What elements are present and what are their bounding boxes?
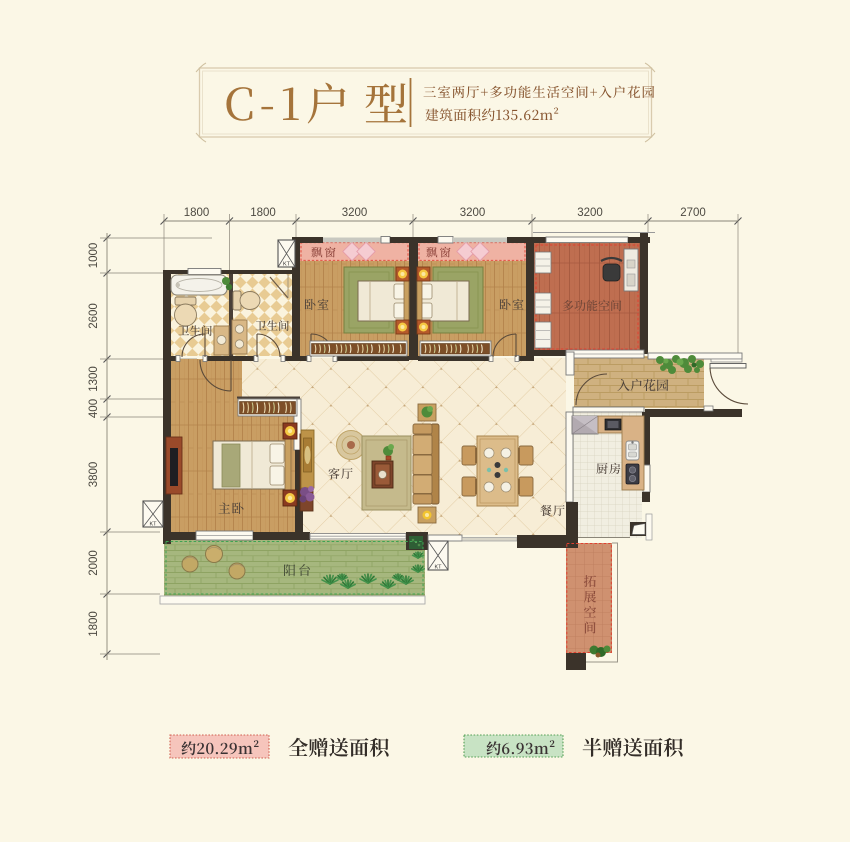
svg-text:3200: 3200 — [460, 207, 486, 219]
svg-text:3200: 3200 — [577, 207, 603, 219]
svg-text:KT: KT — [434, 565, 442, 571]
svg-text:1800: 1800 — [184, 207, 210, 219]
svg-text:2000: 2000 — [88, 550, 100, 576]
svg-text:1000: 1000 — [88, 243, 100, 269]
svg-text:1800: 1800 — [250, 207, 276, 219]
svg-text:1300: 1300 — [88, 366, 100, 392]
svg-text:400: 400 — [88, 399, 100, 418]
svg-text:2700: 2700 — [680, 207, 706, 219]
svg-text:3800: 3800 — [88, 462, 100, 488]
svg-text:1800: 1800 — [88, 611, 100, 637]
svg-text:2600: 2600 — [88, 303, 100, 329]
svg-text:KT: KT — [149, 522, 157, 528]
svg-text:3200: 3200 — [342, 207, 368, 219]
svg-text:KT: KT — [283, 262, 291, 268]
